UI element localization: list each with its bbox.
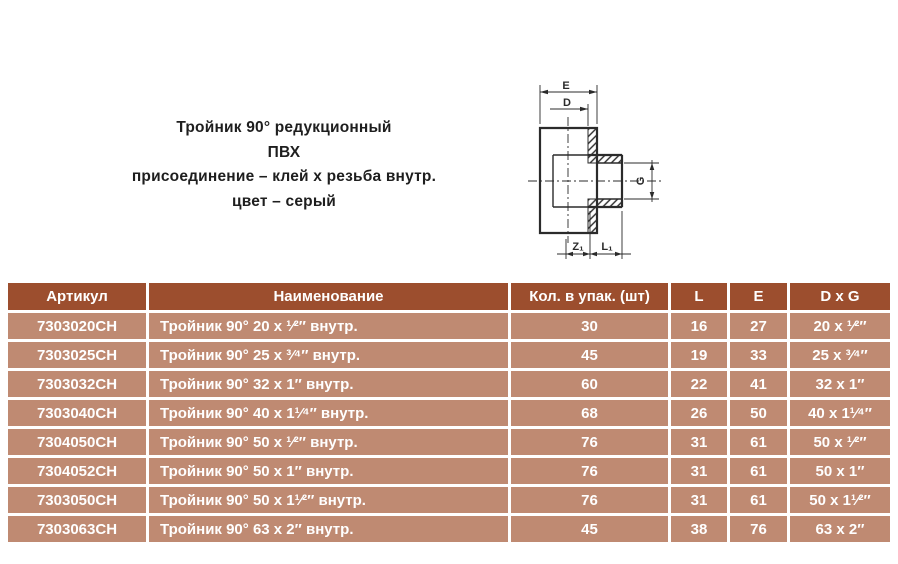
l-cell: 26: [671, 400, 727, 426]
name-cell: Тройник 90° 50 x ¹⁄²″ внутр.: [149, 429, 508, 455]
name-cell: Тройник 90° 32 x 1″ внутр.: [149, 371, 508, 397]
product-table: Артикул Наименование Кол. в упак. (шт) L…: [8, 283, 890, 542]
article-cell: 7303050CH: [8, 487, 146, 513]
dxg-cell: 20 x ¹⁄²″: [790, 313, 890, 339]
dxg-cell: 50 x 1″: [790, 458, 890, 484]
pack-qty-cell: 30: [511, 313, 668, 339]
e-cell: 27: [730, 313, 787, 339]
e-cell: 41: [730, 371, 787, 397]
column-header-dxg: D x G: [790, 283, 890, 310]
e-cell: 61: [730, 429, 787, 455]
l-cell: 31: [671, 458, 727, 484]
pack-qty-cell: 76: [511, 487, 668, 513]
dxg-cell: 25 x ³⁄⁴″: [790, 342, 890, 368]
pack-qty-cell: 45: [511, 516, 668, 542]
e-cell: 33: [730, 342, 787, 368]
pack-qty-cell: 76: [511, 458, 668, 484]
product-title-line: Тройник 90° редукционный: [78, 116, 490, 141]
pack-qty-cell: 76: [511, 429, 668, 455]
e-cell: 50: [730, 400, 787, 426]
tee-section-drawing: E D G Z₁ L₁: [495, 50, 705, 265]
name-cell: Тройник 90° 20 x ¹⁄²″ внутр.: [149, 313, 508, 339]
product-title: Тройник 90° редукционный ПВХ присоединен…: [78, 116, 490, 214]
name-cell: Тройник 90° 25 x ³⁄⁴″ внутр.: [149, 342, 508, 368]
pack-qty-cell: 45: [511, 342, 668, 368]
pack-qty-cell: 60: [511, 371, 668, 397]
dim-label-g: G: [635, 177, 647, 186]
name-cell: Тройник 90° 50 x 1″ внутр.: [149, 458, 508, 484]
article-cell: 7303063CH: [8, 516, 146, 542]
product-title-line: цвет – серый: [78, 190, 490, 215]
l-cell: 31: [671, 429, 727, 455]
dxg-cell: 50 x ¹⁄²″: [790, 429, 890, 455]
l-cell: 19: [671, 342, 727, 368]
l-cell: 16: [671, 313, 727, 339]
dxg-cell: 50 x 1¹⁄²″: [790, 487, 890, 513]
pack-qty-cell: 68: [511, 400, 668, 426]
column-header-name: Наименование: [149, 283, 508, 310]
column-header-pack-qty: Кол. в упак. (шт): [511, 283, 668, 310]
dxg-cell: 32 x 1″: [790, 371, 890, 397]
name-cell: Тройник 90° 63 x 2″ внутр.: [149, 516, 508, 542]
column-header-article: Артикул: [8, 283, 146, 310]
dim-label-d: D: [563, 97, 571, 109]
name-cell: Тройник 90° 50 x 1¹⁄²″ внутр.: [149, 487, 508, 513]
thread-hatching: [588, 128, 622, 233]
dxg-cell: 63 x 2″: [790, 516, 890, 542]
article-cell: 7303020CH: [8, 313, 146, 339]
column-header-e: E: [730, 283, 787, 310]
product-title-line: ПВХ: [78, 141, 490, 166]
column-header-l: L: [671, 283, 727, 310]
dimension-labels: E D G Z₁ L₁: [562, 80, 647, 253]
product-title-line: присоединение – клей х резьба внутр.: [78, 165, 490, 190]
dxg-cell: 40 x 1¹⁄⁴″: [790, 400, 890, 426]
technical-drawing: E D G Z₁ L₁: [495, 50, 705, 265]
dim-label-l1: L₁: [601, 241, 613, 253]
e-cell: 76: [730, 516, 787, 542]
dim-label-z1: Z₁: [572, 241, 584, 253]
dim-label-e: E: [562, 80, 569, 92]
name-cell: Тройник 90° 40 x 1¹⁄⁴″ внутр.: [149, 400, 508, 426]
article-cell: 7304050CH: [8, 429, 146, 455]
l-cell: 22: [671, 371, 727, 397]
e-cell: 61: [730, 458, 787, 484]
article-cell: 7303040CH: [8, 400, 146, 426]
l-cell: 38: [671, 516, 727, 542]
article-cell: 7304052CH: [8, 458, 146, 484]
e-cell: 61: [730, 487, 787, 513]
article-cell: 7303025CH: [8, 342, 146, 368]
l-cell: 31: [671, 487, 727, 513]
article-cell: 7303032CH: [8, 371, 146, 397]
